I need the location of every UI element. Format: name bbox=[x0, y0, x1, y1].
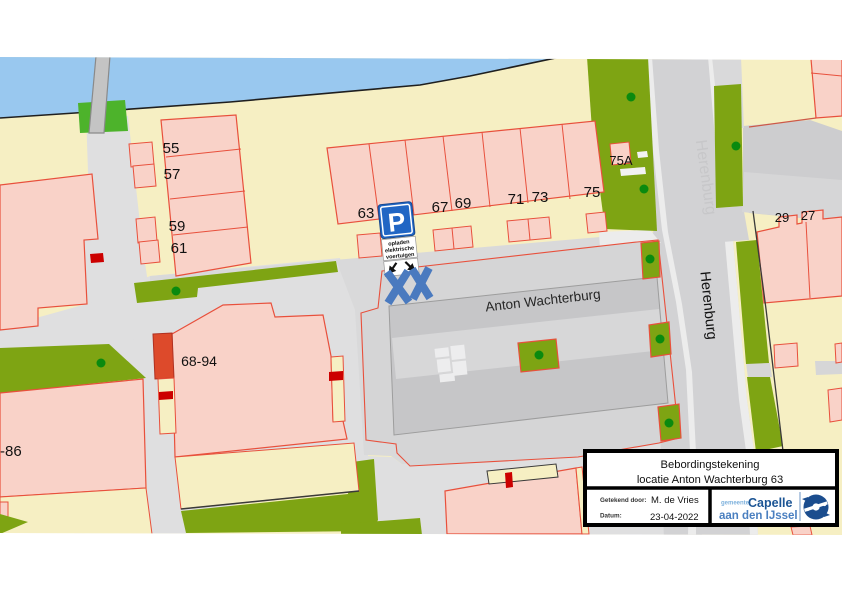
svg-text:27: 27 bbox=[801, 208, 815, 223]
svg-text:M. de Vries: M. de Vries bbox=[651, 495, 699, 506]
svg-text:aan den IJssel: aan den IJssel bbox=[719, 510, 798, 522]
svg-text:55: 55 bbox=[163, 140, 180, 157]
svg-text:75A: 75A bbox=[609, 153, 632, 168]
svg-text:locatie Anton Wachterburg 63: locatie Anton Wachterburg 63 bbox=[637, 474, 783, 486]
svg-text:-86: -86 bbox=[0, 443, 22, 460]
svg-text:71: 71 bbox=[508, 191, 525, 208]
svg-text:Bebordingstekening: Bebordingstekening bbox=[661, 459, 760, 471]
svg-text:59: 59 bbox=[169, 218, 186, 235]
svg-text:61: 61 bbox=[171, 240, 188, 257]
svg-text:Datum:: Datum: bbox=[600, 513, 622, 520]
svg-text:Capelle: Capelle bbox=[748, 496, 793, 510]
svg-text:57: 57 bbox=[164, 166, 181, 183]
svg-text:P: P bbox=[386, 206, 406, 238]
svg-text:Getekend door:: Getekend door: bbox=[600, 497, 647, 504]
svg-text:23-04-2022: 23-04-2022 bbox=[650, 512, 699, 523]
svg-text:68-94: 68-94 bbox=[181, 353, 217, 369]
svg-text:75: 75 bbox=[584, 184, 601, 201]
svg-text:67: 67 bbox=[432, 199, 449, 216]
svg-text:73: 73 bbox=[532, 189, 549, 206]
svg-text:gemeente: gemeente bbox=[721, 501, 750, 507]
svg-text:69: 69 bbox=[455, 195, 472, 212]
svg-text:29: 29 bbox=[775, 210, 789, 225]
svg-text:63: 63 bbox=[358, 205, 375, 222]
